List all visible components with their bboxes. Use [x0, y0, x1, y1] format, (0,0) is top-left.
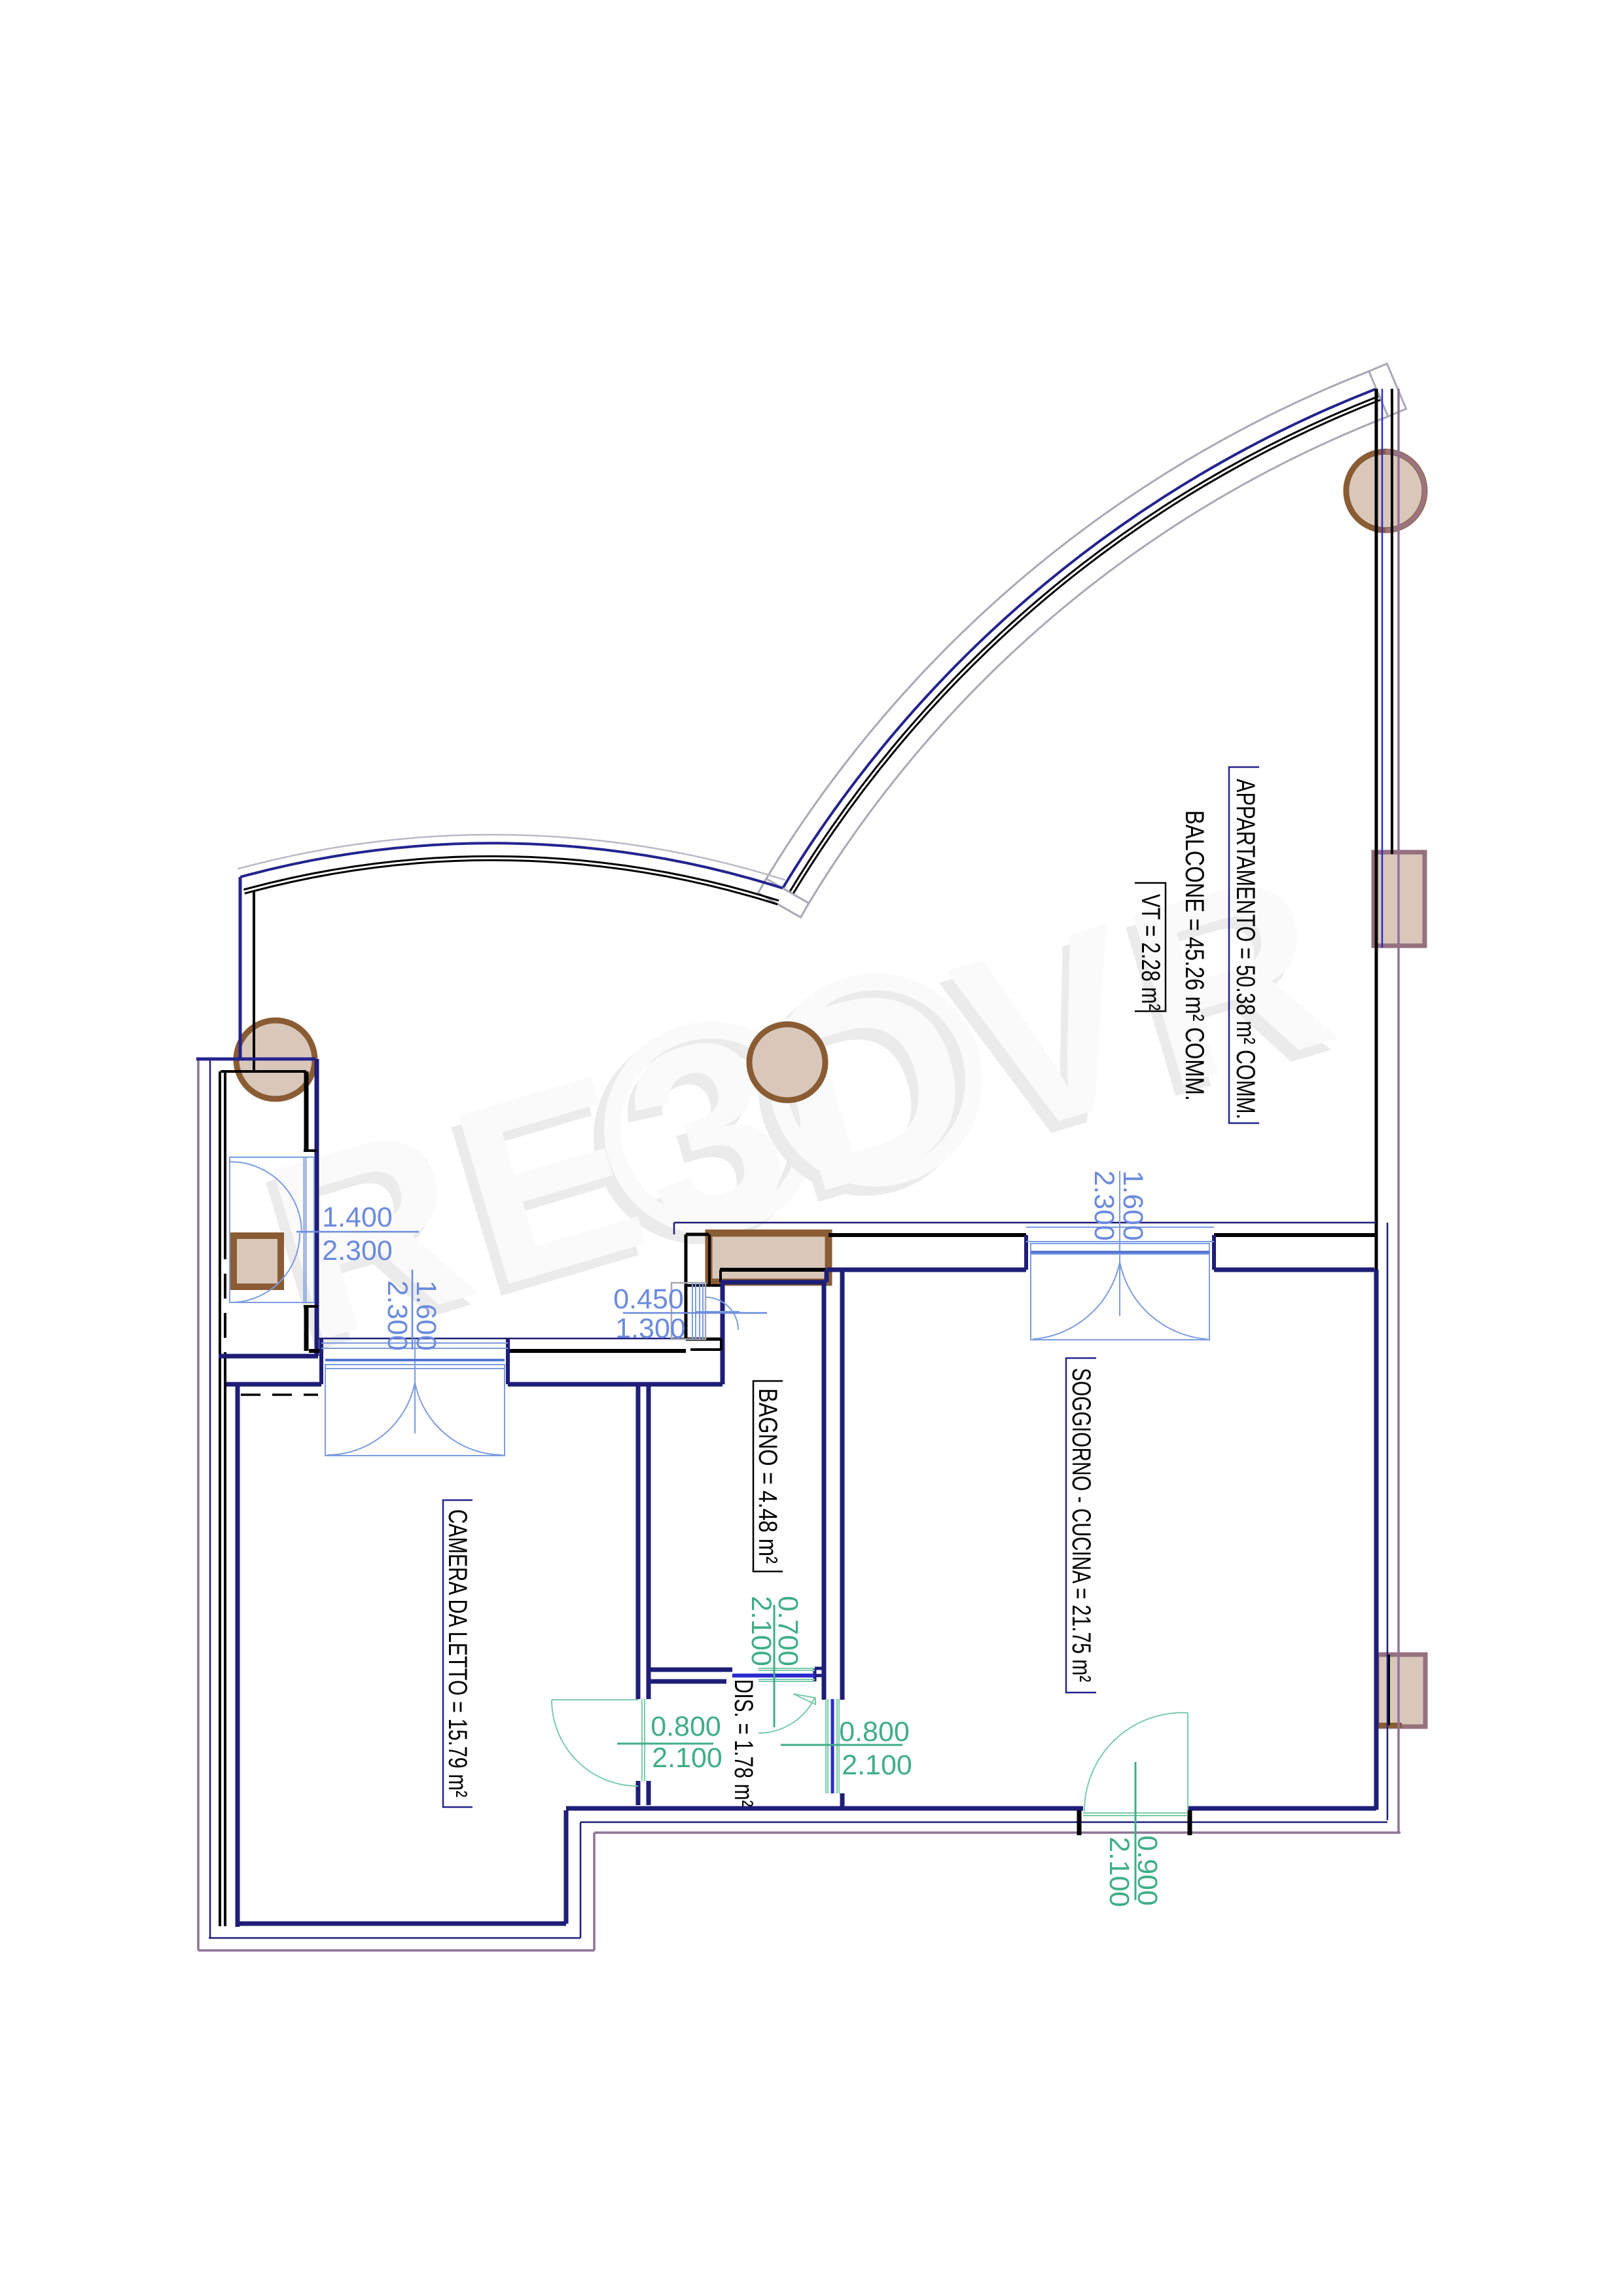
svg-text:VT = 2.28 m²: VT = 2.28 m²: [1136, 894, 1165, 1011]
svg-text:2.300: 2.300: [322, 1235, 393, 1266]
svg-text:BALCONE = 45.26 m² COMM.: BALCONE = 45.26 m² COMM.: [1180, 810, 1209, 1101]
svg-text:2.300: 2.300: [382, 1280, 413, 1351]
svg-text:SOGGIORNO - CUCINA = 21.75 m²: SOGGIORNO - CUCINA = 21.75 m²: [1067, 1368, 1096, 1682]
svg-text:2.100: 2.100: [652, 1742, 722, 1774]
svg-text:1.600: 1.600: [1117, 1170, 1149, 1241]
svg-text:2.100: 2.100: [1103, 1837, 1135, 1907]
svg-text:0.800: 0.800: [839, 1716, 910, 1748]
svg-text:0.450: 0.450: [613, 1283, 684, 1315]
svg-text:0.900: 0.900: [1132, 1835, 1163, 1906]
svg-text:2.300: 2.300: [1088, 1170, 1120, 1241]
svg-text:BAGNO = 4.48 m²: BAGNO = 4.48 m²: [753, 1388, 782, 1564]
svg-text:CAMERA DA LETTO = 15.79 m²: CAMERA DA LETTO = 15.79 m²: [443, 1509, 472, 1797]
svg-text:1.600: 1.600: [410, 1280, 442, 1351]
svg-text:DIS. = 1.78 m²: DIS. = 1.78 m²: [729, 1679, 758, 1807]
svg-text:2.100: 2.100: [842, 1749, 912, 1781]
svg-text:1.400: 1.400: [322, 1202, 393, 1233]
svg-text:APPARTAMENTO = 50.38 m² COMM.: APPARTAMENTO = 50.38 m² COMM.: [1231, 779, 1260, 1119]
svg-text:1.300: 1.300: [615, 1313, 686, 1344]
svg-text:2.100: 2.100: [745, 1596, 777, 1666]
svg-text:0.800: 0.800: [651, 1711, 721, 1742]
